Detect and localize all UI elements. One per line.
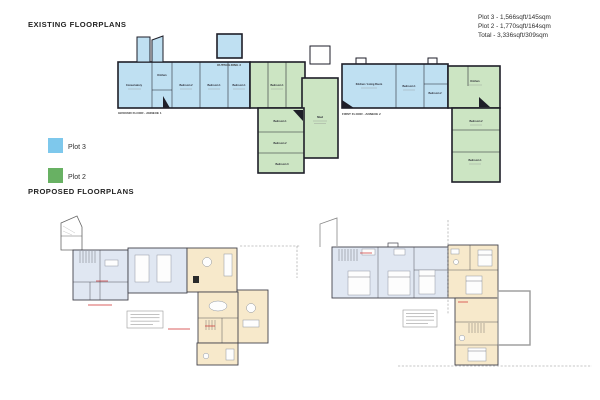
boundary-dashed-line xyxy=(240,246,300,278)
legend-label-plot2: Plot 2 xyxy=(68,174,86,181)
floorplan-sheet: EXISTING FLOORPLANS PROPOSED FLOORPLANS … xyxy=(0,0,600,400)
room-label: Bedroom 2 xyxy=(179,84,193,87)
caption-first-floor: FIRST FLOOR - ANNEXE 2 xyxy=(342,112,381,116)
room-label: Bedroom 1 xyxy=(402,85,416,88)
room-label: Bedroom 1 xyxy=(270,84,284,87)
terrace-outline xyxy=(498,291,530,345)
legend-swatch-plot2 xyxy=(48,168,63,183)
room-label: Conservatory xyxy=(126,84,143,87)
existing-title: EXISTING FLOORPLANS xyxy=(28,20,126,29)
room-label: Bedroom 2 xyxy=(428,92,442,95)
caption-ground-floor: GROUND FLOOR - ANNEXE 1 xyxy=(118,111,162,115)
room-label: Bedroom 1 xyxy=(273,120,287,123)
stat-plot2: Plot 2 - 1,770sqft/164sqm xyxy=(478,23,551,30)
annexe1-store xyxy=(152,36,163,62)
area-stats: Plot 3 - 1,566sqft/145sqm Plot 2 - 1,770… xyxy=(478,14,551,39)
existing-floorplan: Conservatory Kitchen Bedroom 2 Bedroom 1… xyxy=(118,34,500,182)
legend: Plot 3 Plot 2 xyxy=(48,138,86,183)
room-label: Kitchen xyxy=(470,80,480,83)
proposed-plan-left xyxy=(61,216,300,365)
room-label: Bedroom 1 xyxy=(207,84,221,87)
open-extension-outline xyxy=(320,218,337,247)
spec-notes-box xyxy=(127,311,163,328)
spec-notes-box xyxy=(403,310,437,327)
small-store xyxy=(310,46,330,64)
fireplace xyxy=(193,276,199,283)
room-label: Bedroom 1 xyxy=(468,159,482,162)
proposed-title: PROPOSED FLOORPLANS xyxy=(28,187,134,196)
room-label: Bedroom 2 xyxy=(469,120,483,123)
room-label: Kitchen / Living Room xyxy=(356,83,383,86)
room-label: Kitchen xyxy=(157,74,167,77)
room-label: Bedroom 1 xyxy=(232,84,246,87)
outbuilding-outline xyxy=(61,216,82,250)
stat-total: Total - 3,336sqft/309sqm xyxy=(478,32,548,39)
room-label: Shed xyxy=(317,116,324,119)
annexe2-block xyxy=(342,64,448,108)
caption-outbuilding: OUTBUILDING 3 xyxy=(217,63,241,67)
hall-kitchen-block xyxy=(73,250,128,300)
lounge-block xyxy=(237,290,268,343)
stat-plot3: Plot 3 - 1,566sqft/145sqm xyxy=(478,14,551,21)
room-label: Bedroom 3 xyxy=(275,163,289,166)
dining-hall-block xyxy=(198,292,238,343)
outbuilding3 xyxy=(217,34,242,58)
legend-label-plot3: Plot 3 xyxy=(68,144,86,151)
room-label: Bedroom 2 xyxy=(273,142,287,145)
legend-swatch-plot3 xyxy=(48,138,63,153)
proposed-plan-right xyxy=(320,218,592,366)
annexe1-porch xyxy=(137,37,150,62)
plot2-right-top xyxy=(448,66,500,108)
